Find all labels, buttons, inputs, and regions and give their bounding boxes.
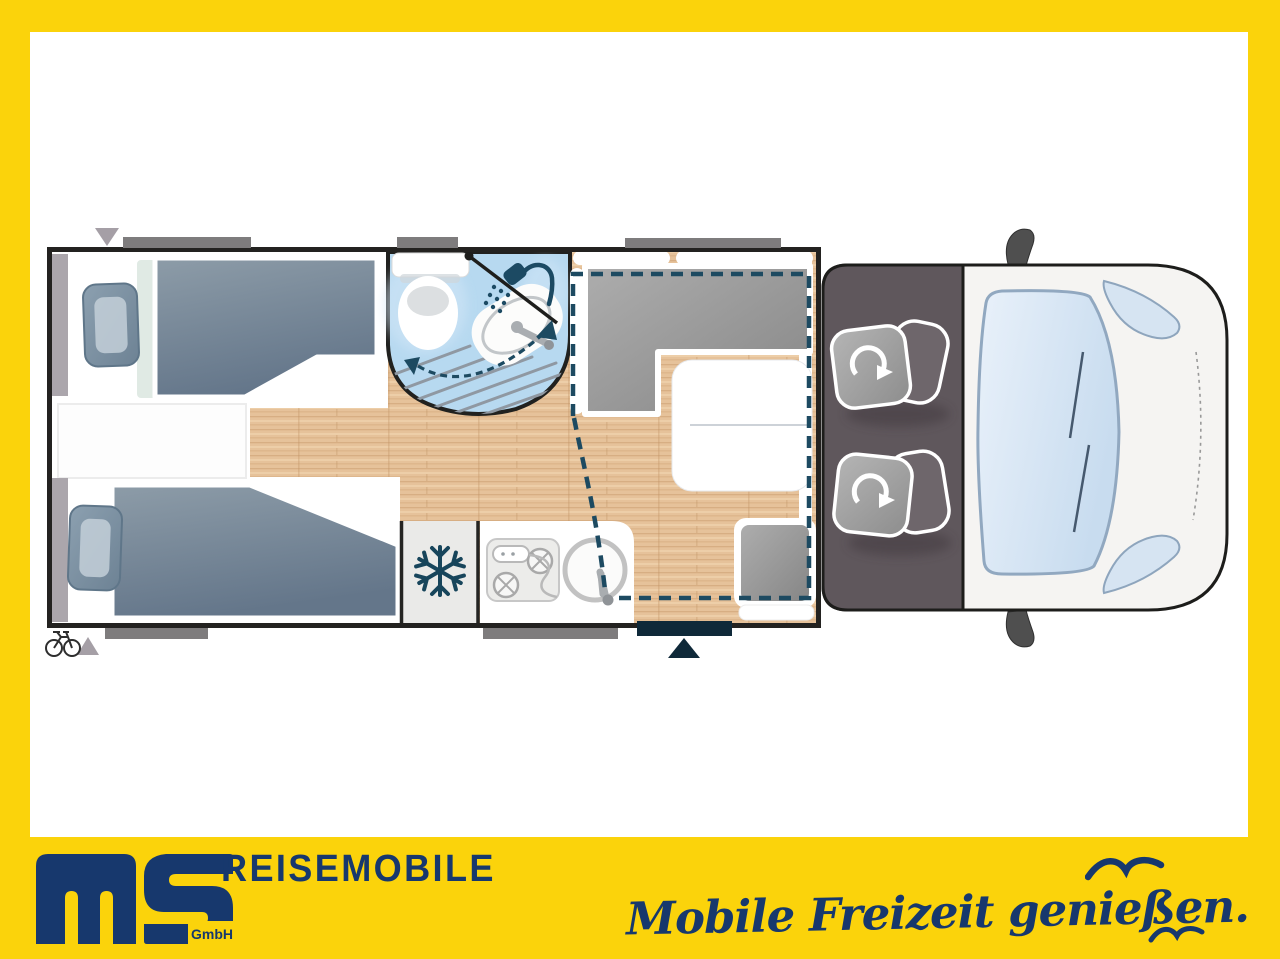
cab-floor (823, 265, 963, 610)
wardrobe-strip-top (52, 254, 68, 396)
side-mirror-icon-top (1006, 229, 1034, 266)
seat-base (832, 452, 914, 537)
sink (565, 540, 625, 600)
window-bar-bottom-2 (483, 628, 618, 639)
logo-gmbh-text: GmbH (191, 926, 233, 942)
side-bench-cushion (741, 525, 809, 601)
window-bar-bottom-1 (105, 628, 208, 639)
marker-triangle-top (95, 228, 119, 246)
window-bar-top-1 (123, 237, 251, 248)
cab-and-front (823, 229, 1227, 647)
page-background: GmbH REISEMOBILE Mobile Freizeit genieße… (0, 0, 1280, 959)
window-bar-top-3 (625, 238, 781, 248)
entry-arrow-icon (668, 638, 700, 658)
ms-logo: GmbH (36, 853, 236, 948)
seagull-icon-small (1148, 918, 1206, 952)
entry-door-bar (637, 621, 732, 636)
toilet-cistern (392, 253, 469, 277)
logo-letter-m (36, 854, 136, 944)
backrest-pill-2 (676, 251, 813, 265)
seagull-icon-large (1085, 849, 1167, 891)
window-pill-bed (79, 252, 135, 264)
side-bench-pill (739, 605, 814, 620)
backrest-pill-1 (573, 251, 670, 265)
bathroom (383, 252, 574, 419)
brand-text: REISEMOBILE (221, 848, 496, 891)
pillow-bottom-bed (68, 505, 123, 591)
pillow-top-bed (83, 283, 140, 367)
between-beds-cabinet (58, 404, 246, 478)
seat-base (830, 324, 913, 410)
side-mirror-icon-bottom (1006, 610, 1034, 647)
wardrobe-strip-bottom (52, 478, 68, 622)
floorplan-graphic (0, 0, 1280, 959)
window-bar-top-2 (397, 237, 458, 248)
swivel-seat-2 (832, 448, 952, 556)
windshield (978, 291, 1119, 574)
bicycle-icon (46, 632, 80, 656)
